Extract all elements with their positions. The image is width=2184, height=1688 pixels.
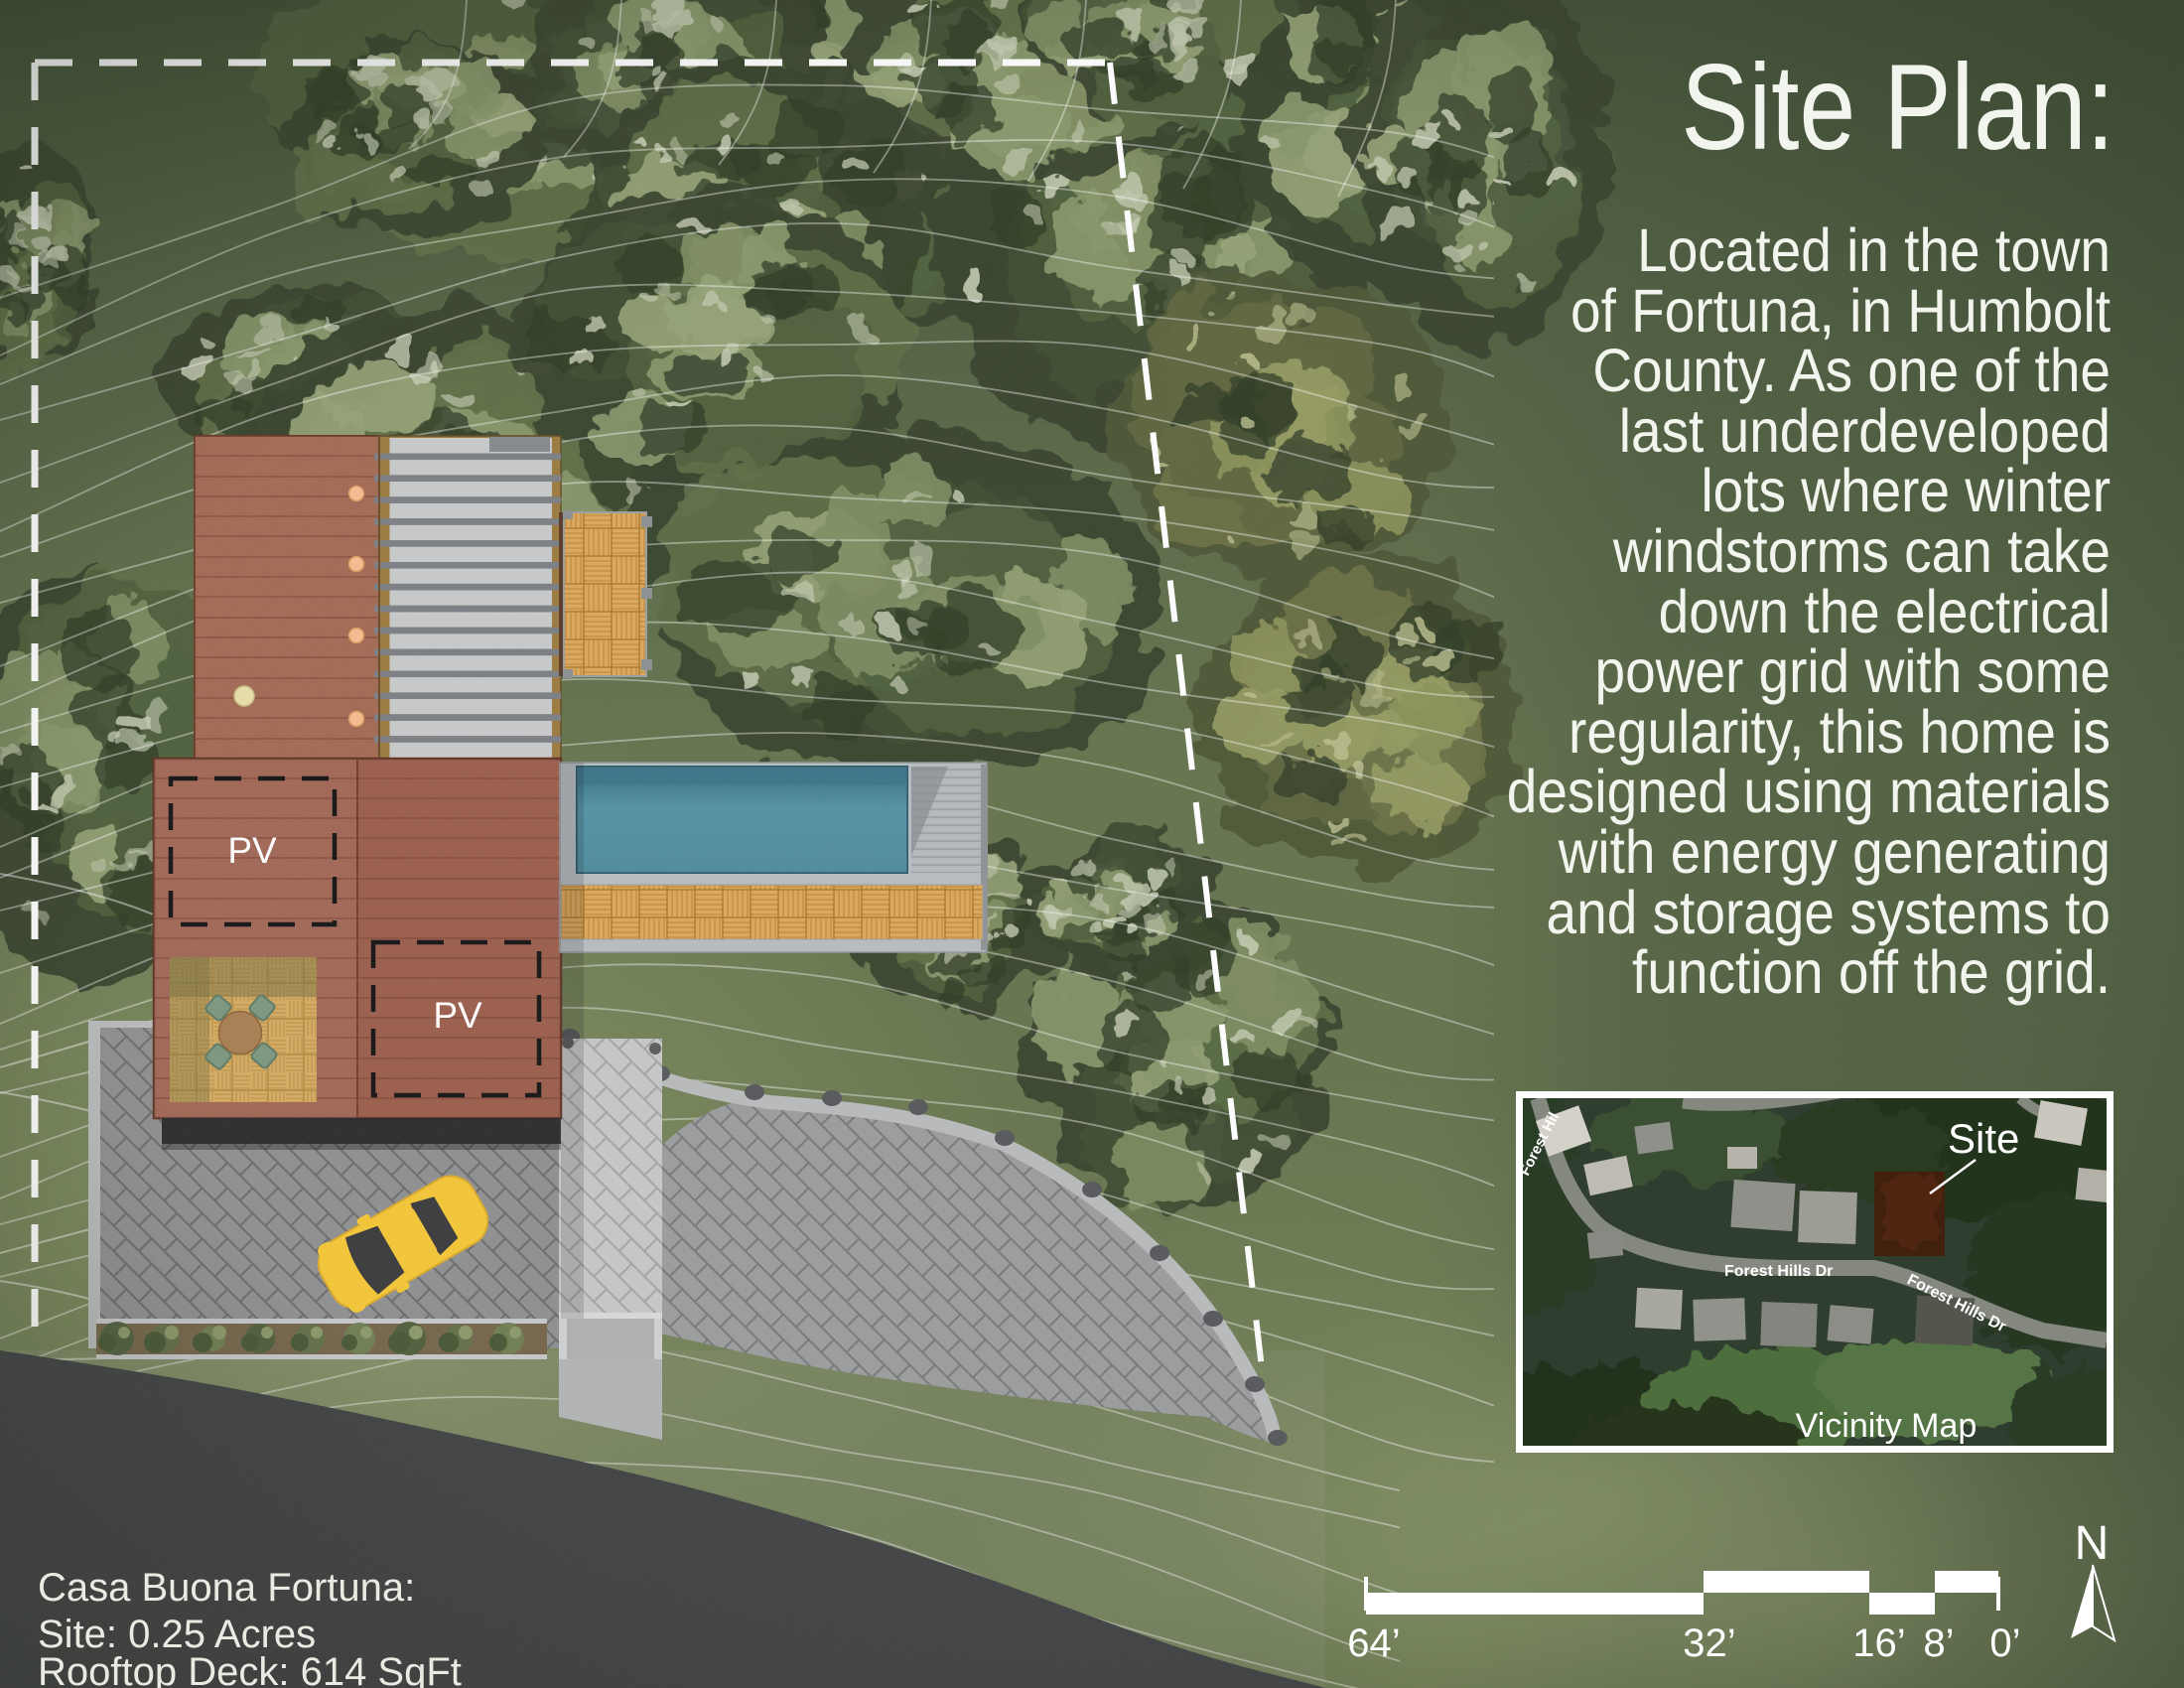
svg-text:Forest Hills Dr: Forest Hills Dr <box>1724 1263 1833 1280</box>
svg-text:Site: Site <box>1948 1115 2019 1162</box>
svg-text:windstorms can take: windstorms can take <box>1612 517 2111 586</box>
svg-text:Located in the town: Located in the town <box>1637 216 2111 285</box>
svg-text:with energy generating: with energy generating <box>1558 818 2111 887</box>
svg-text:County. As one of the: County. As one of the <box>1592 337 2111 405</box>
svg-text:Vicinity Map: Vicinity Map <box>1796 1407 1978 1445</box>
svg-text:N: N <box>2075 1517 2110 1570</box>
svg-text:regularity, this home is: regularity, this home is <box>1569 698 2111 767</box>
svg-text:and storage systems to: and storage systems to <box>1547 879 2111 947</box>
svg-text:function off the grid.: function off the grid. <box>1632 938 2111 1007</box>
svg-text:of Fortuna, in Humbolt: of Fortuna, in Humbolt <box>1570 277 2111 346</box>
svg-text:0’: 0’ <box>1989 1621 2020 1665</box>
svg-text:designed using materials: designed using materials <box>1507 758 2111 826</box>
svg-text:Site Plan:: Site Plan: <box>1681 39 2115 175</box>
svg-text:16’: 16’ <box>1852 1621 1905 1665</box>
svg-text:power grid with some: power grid with some <box>1595 637 2111 706</box>
svg-text:down the electrical: down the electrical <box>1659 578 2111 646</box>
svg-text:32’: 32’ <box>1683 1621 1735 1665</box>
svg-text:lots where winter: lots where winter <box>1701 457 2111 525</box>
svg-text:8’: 8’ <box>1923 1621 1954 1665</box>
svg-text:64’: 64’ <box>1347 1621 1400 1665</box>
svg-text:Rooftop Deck: 614 SqFt: Rooftop Deck: 614 SqFt <box>38 1650 462 1688</box>
svg-text:last underdeveloped: last underdeveloped <box>1619 397 2111 466</box>
svg-text:Casa Buona Fortuna:: Casa Buona Fortuna: <box>38 1566 415 1610</box>
